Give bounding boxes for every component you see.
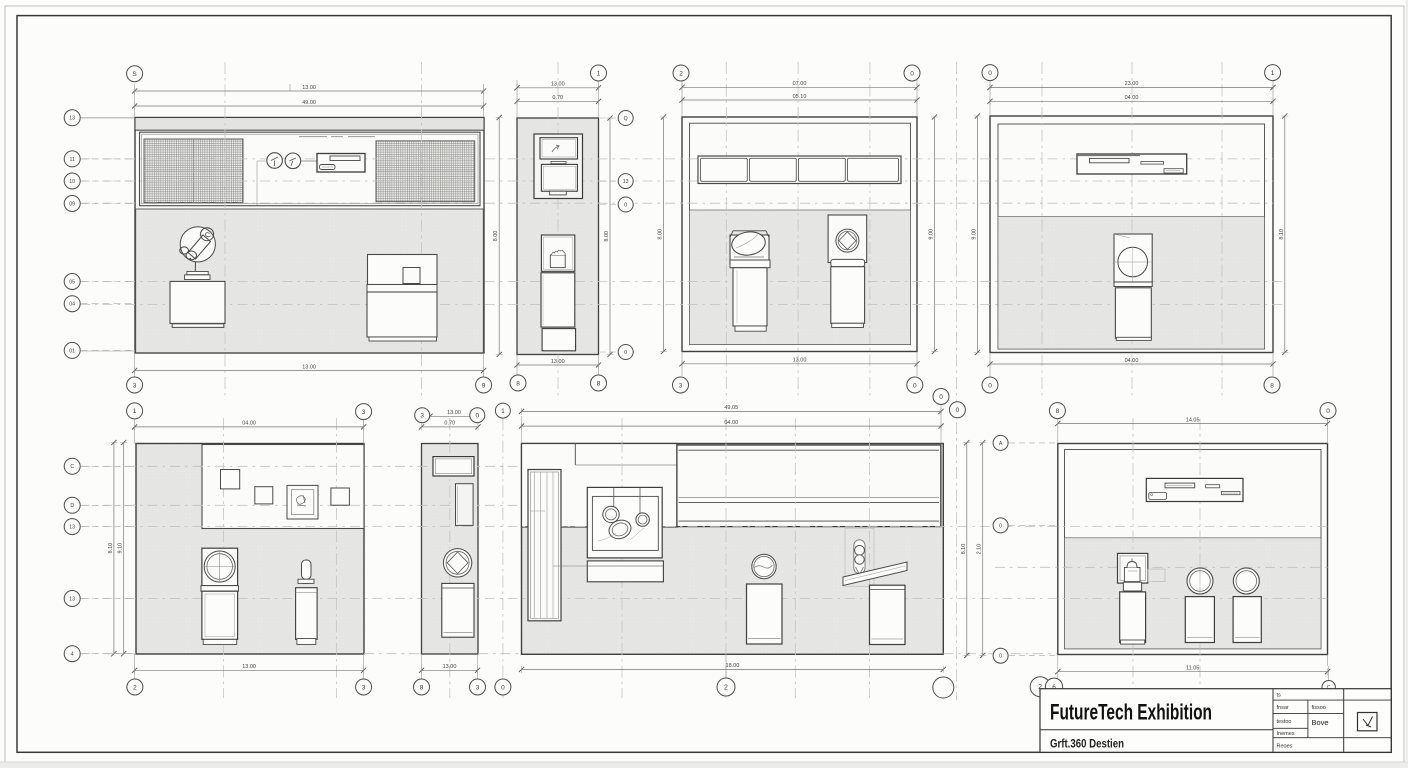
svg-text:0: 0	[956, 407, 960, 414]
svg-text:2: 2	[724, 685, 728, 692]
svg-text:05.10: 05.10	[793, 94, 807, 100]
svg-text:13.00: 13.00	[242, 664, 256, 670]
svg-text:3: 3	[476, 684, 480, 691]
svg-text:Grft.360 Destien: Grft.360 Destien	[1050, 739, 1124, 751]
svg-text:13.00: 13.00	[447, 410, 461, 416]
svg-text:9: 9	[482, 382, 486, 389]
svg-text:13.00: 13.00	[793, 358, 807, 364]
svg-text:9.10: 9.10	[118, 543, 124, 554]
svg-text:8.00: 8.00	[493, 231, 499, 242]
svg-text:0: 0	[988, 70, 992, 77]
svg-text:A: A	[999, 441, 1003, 447]
svg-text:0.70: 0.70	[552, 95, 563, 101]
svg-text:Bove: Bove	[1312, 718, 1329, 727]
svg-text:3: 3	[362, 684, 366, 691]
svg-text:11.05: 11.05	[1186, 666, 1199, 672]
svg-text:0.70: 0.70	[444, 421, 455, 427]
svg-text:13.00: 13.00	[551, 359, 565, 365]
svg-text:0: 0	[910, 70, 914, 77]
svg-text:Reoes: Reoes	[1277, 744, 1293, 750]
svg-text:3: 3	[362, 409, 366, 416]
svg-text:1: 1	[1271, 70, 1275, 77]
svg-text:0: 0	[475, 413, 479, 420]
svg-text:C: C	[70, 464, 74, 470]
svg-text:9.00: 9.00	[971, 229, 977, 240]
svg-text:11: 11	[70, 157, 75, 163]
svg-text:04.00: 04.00	[1125, 358, 1139, 364]
svg-text:04.00: 04.00	[242, 421, 256, 427]
svg-text:13.00: 13.00	[443, 664, 457, 670]
svg-text:8: 8	[420, 684, 424, 691]
svg-text:1: 1	[501, 408, 505, 415]
svg-text:07.00: 07.00	[793, 81, 807, 87]
svg-text:0: 0	[988, 382, 992, 389]
svg-text:23.00: 23.00	[1125, 81, 1139, 87]
svg-text:05: 05	[69, 279, 75, 285]
svg-text:8.00: 8.00	[604, 231, 610, 242]
svg-text:8.10: 8.10	[1279, 229, 1285, 240]
svg-text:9.00: 9.00	[929, 229, 935, 240]
svg-text:0: 0	[939, 394, 943, 401]
svg-text:3: 3	[420, 413, 424, 420]
svg-text:fissoo: fissoo	[1312, 705, 1326, 711]
svg-text:Q: Q	[624, 116, 628, 122]
svg-text:testoo: testoo	[1277, 719, 1292, 725]
svg-text:13: 13	[69, 524, 75, 530]
svg-text:3: 3	[679, 382, 683, 389]
svg-text:1: 1	[133, 408, 137, 415]
svg-text:0: 0	[624, 350, 627, 356]
svg-text:fnsar: fnsar	[1277, 705, 1289, 711]
svg-text:3: 3	[133, 382, 137, 389]
svg-text:18.00: 18.00	[726, 663, 740, 669]
svg-text:8: 8	[1270, 382, 1274, 389]
svg-text:13: 13	[623, 179, 629, 185]
svg-text:0: 0	[999, 654, 1002, 660]
svg-text:0: 0	[999, 523, 1002, 529]
svg-text:0: 0	[501, 684, 505, 691]
svg-text:14.05: 14.05	[1186, 417, 1200, 423]
svg-text:2: 2	[133, 684, 137, 691]
svg-text:4: 4	[71, 652, 74, 658]
svg-text:49.00: 49.00	[302, 100, 316, 106]
svg-text:13: 13	[69, 596, 75, 602]
svg-text:1: 1	[597, 70, 601, 77]
svg-text:13.00: 13.00	[302, 364, 316, 370]
svg-text:FutureTech Exhibition: FutureTech Exhibition	[1050, 700, 1212, 725]
svg-text:8: 8	[597, 380, 601, 387]
svg-text:8.10: 8.10	[961, 544, 967, 555]
svg-text:09: 09	[69, 201, 75, 207]
svg-text:13.00: 13.00	[302, 85, 316, 91]
svg-text:8.00: 8.00	[658, 229, 664, 240]
svg-text:0: 0	[624, 202, 627, 208]
svg-text:04.00: 04.00	[724, 420, 738, 426]
svg-text:49.05: 49.05	[724, 405, 738, 411]
svg-text:01: 01	[69, 348, 75, 354]
svg-text:10: 10	[69, 179, 75, 185]
svg-text:ts: ts	[1277, 693, 1282, 699]
svg-text:13.00: 13.00	[551, 82, 565, 88]
svg-text:0: 0	[913, 382, 917, 389]
svg-text:D: D	[70, 503, 74, 509]
svg-text:04.00: 04.00	[1125, 95, 1139, 101]
svg-text:Inemes: Inemes	[1277, 731, 1295, 737]
svg-text:13: 13	[69, 116, 75, 122]
svg-text:0: 0	[1326, 408, 1330, 415]
svg-text:04: 04	[69, 302, 75, 308]
svg-text:8.10: 8.10	[108, 543, 114, 554]
svg-text:8: 8	[1056, 408, 1060, 415]
svg-text:S: S	[132, 71, 137, 78]
svg-text:2: 2	[679, 70, 683, 77]
svg-text:2.10: 2.10	[977, 544, 983, 555]
svg-text:8: 8	[516, 380, 520, 387]
